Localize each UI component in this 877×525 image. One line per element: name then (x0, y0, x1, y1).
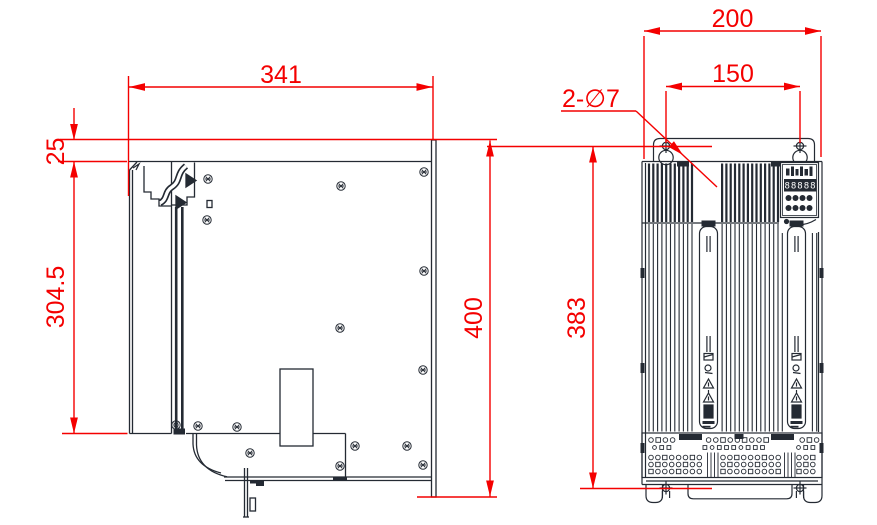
dim-backplate-height: 400 (460, 297, 488, 339)
front-bottom-bracket (642, 481, 822, 503)
grille-holes (649, 438, 819, 477)
dim-hole-callout: 2-∅7 (562, 85, 620, 113)
technical-drawing: 88888 (0, 0, 877, 525)
connector-cover-slot (700, 221, 718, 429)
connector-cover-slot (788, 221, 806, 429)
dim-hole-spacing: 150 (712, 60, 754, 88)
side-latch-detail (133, 163, 212, 210)
side-screws (172, 168, 428, 470)
dim-front-height: 383 (563, 297, 591, 339)
side-bottom-hook (243, 468, 264, 517)
vent-grille (642, 433, 822, 478)
operator-panel: 88888 (781, 163, 819, 225)
side-view (129, 140, 436, 517)
front-view: 88888 (641, 139, 824, 503)
dim-front-width: 200 (712, 5, 754, 33)
dim-top-flange-offset: 25 (42, 138, 70, 166)
drawing-canvas: 88888 (0, 0, 877, 525)
side-label-cutout (280, 369, 313, 446)
side-backplate (432, 140, 437, 497)
dim-side-width: 341 (260, 61, 302, 89)
dim-heatsink-depth: 304.5 (42, 266, 70, 329)
potentiometer-icon (784, 219, 789, 224)
display-value: 88888 (784, 182, 816, 192)
side-fin-band (174, 207, 186, 435)
